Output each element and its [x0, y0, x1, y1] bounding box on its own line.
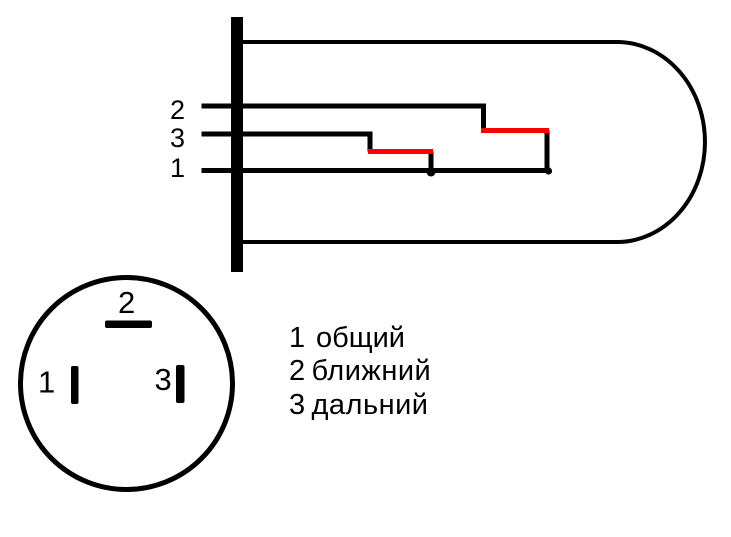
svg-text:3: 3 [289, 389, 305, 421]
svg-text:3: 3 [170, 123, 185, 153]
svg-text:1: 1 [38, 365, 55, 400]
svg-text:дальний: дальний [312, 389, 429, 421]
svg-text:1: 1 [170, 153, 185, 183]
svg-text:общий: общий [316, 322, 405, 354]
svg-text:1: 1 [289, 322, 305, 354]
svg-text:3: 3 [155, 362, 172, 397]
svg-text:2: 2 [289, 355, 305, 387]
svg-text:2: 2 [118, 285, 135, 320]
svg-text:2: 2 [170, 95, 185, 125]
svg-text:ближний: ближний [312, 355, 432, 387]
